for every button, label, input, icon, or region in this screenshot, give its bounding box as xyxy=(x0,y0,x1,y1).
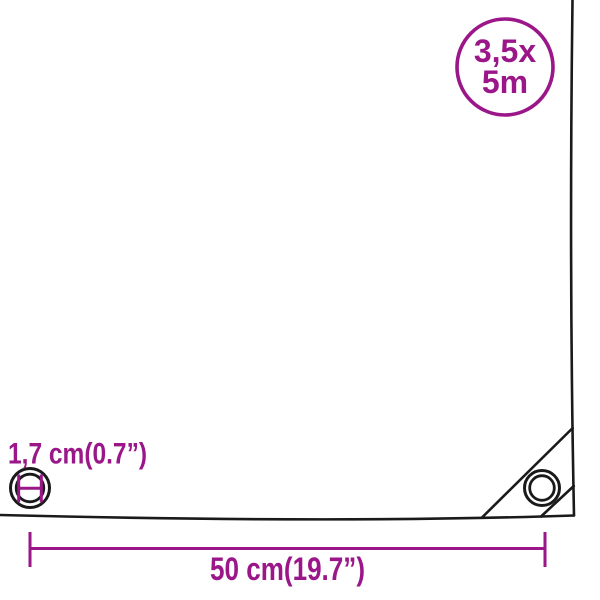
corner-grommet-icon xyxy=(525,471,560,506)
eyelet-diameter-label: 1,7 cm(0.7”) xyxy=(8,438,147,471)
width-dimension-label: 50 cm(19.7”) xyxy=(210,551,365,587)
size-badge: 3,5x 5m xyxy=(457,19,553,115)
corner-patch-seam-long xyxy=(482,428,573,518)
tarp-bottom-edge xyxy=(0,515,574,519)
diagram-svg: 1,7 cm(0.7”) 50 cm(19.7”) 3,5x 5m xyxy=(0,0,600,600)
size-badge-line2: 5m xyxy=(482,64,528,100)
product-dimension-diagram: 1,7 cm(0.7”) 50 cm(19.7”) 3,5x 5m xyxy=(0,0,600,600)
tarp-right-edge xyxy=(571,0,574,516)
eyelet-detail-icon xyxy=(11,469,50,508)
